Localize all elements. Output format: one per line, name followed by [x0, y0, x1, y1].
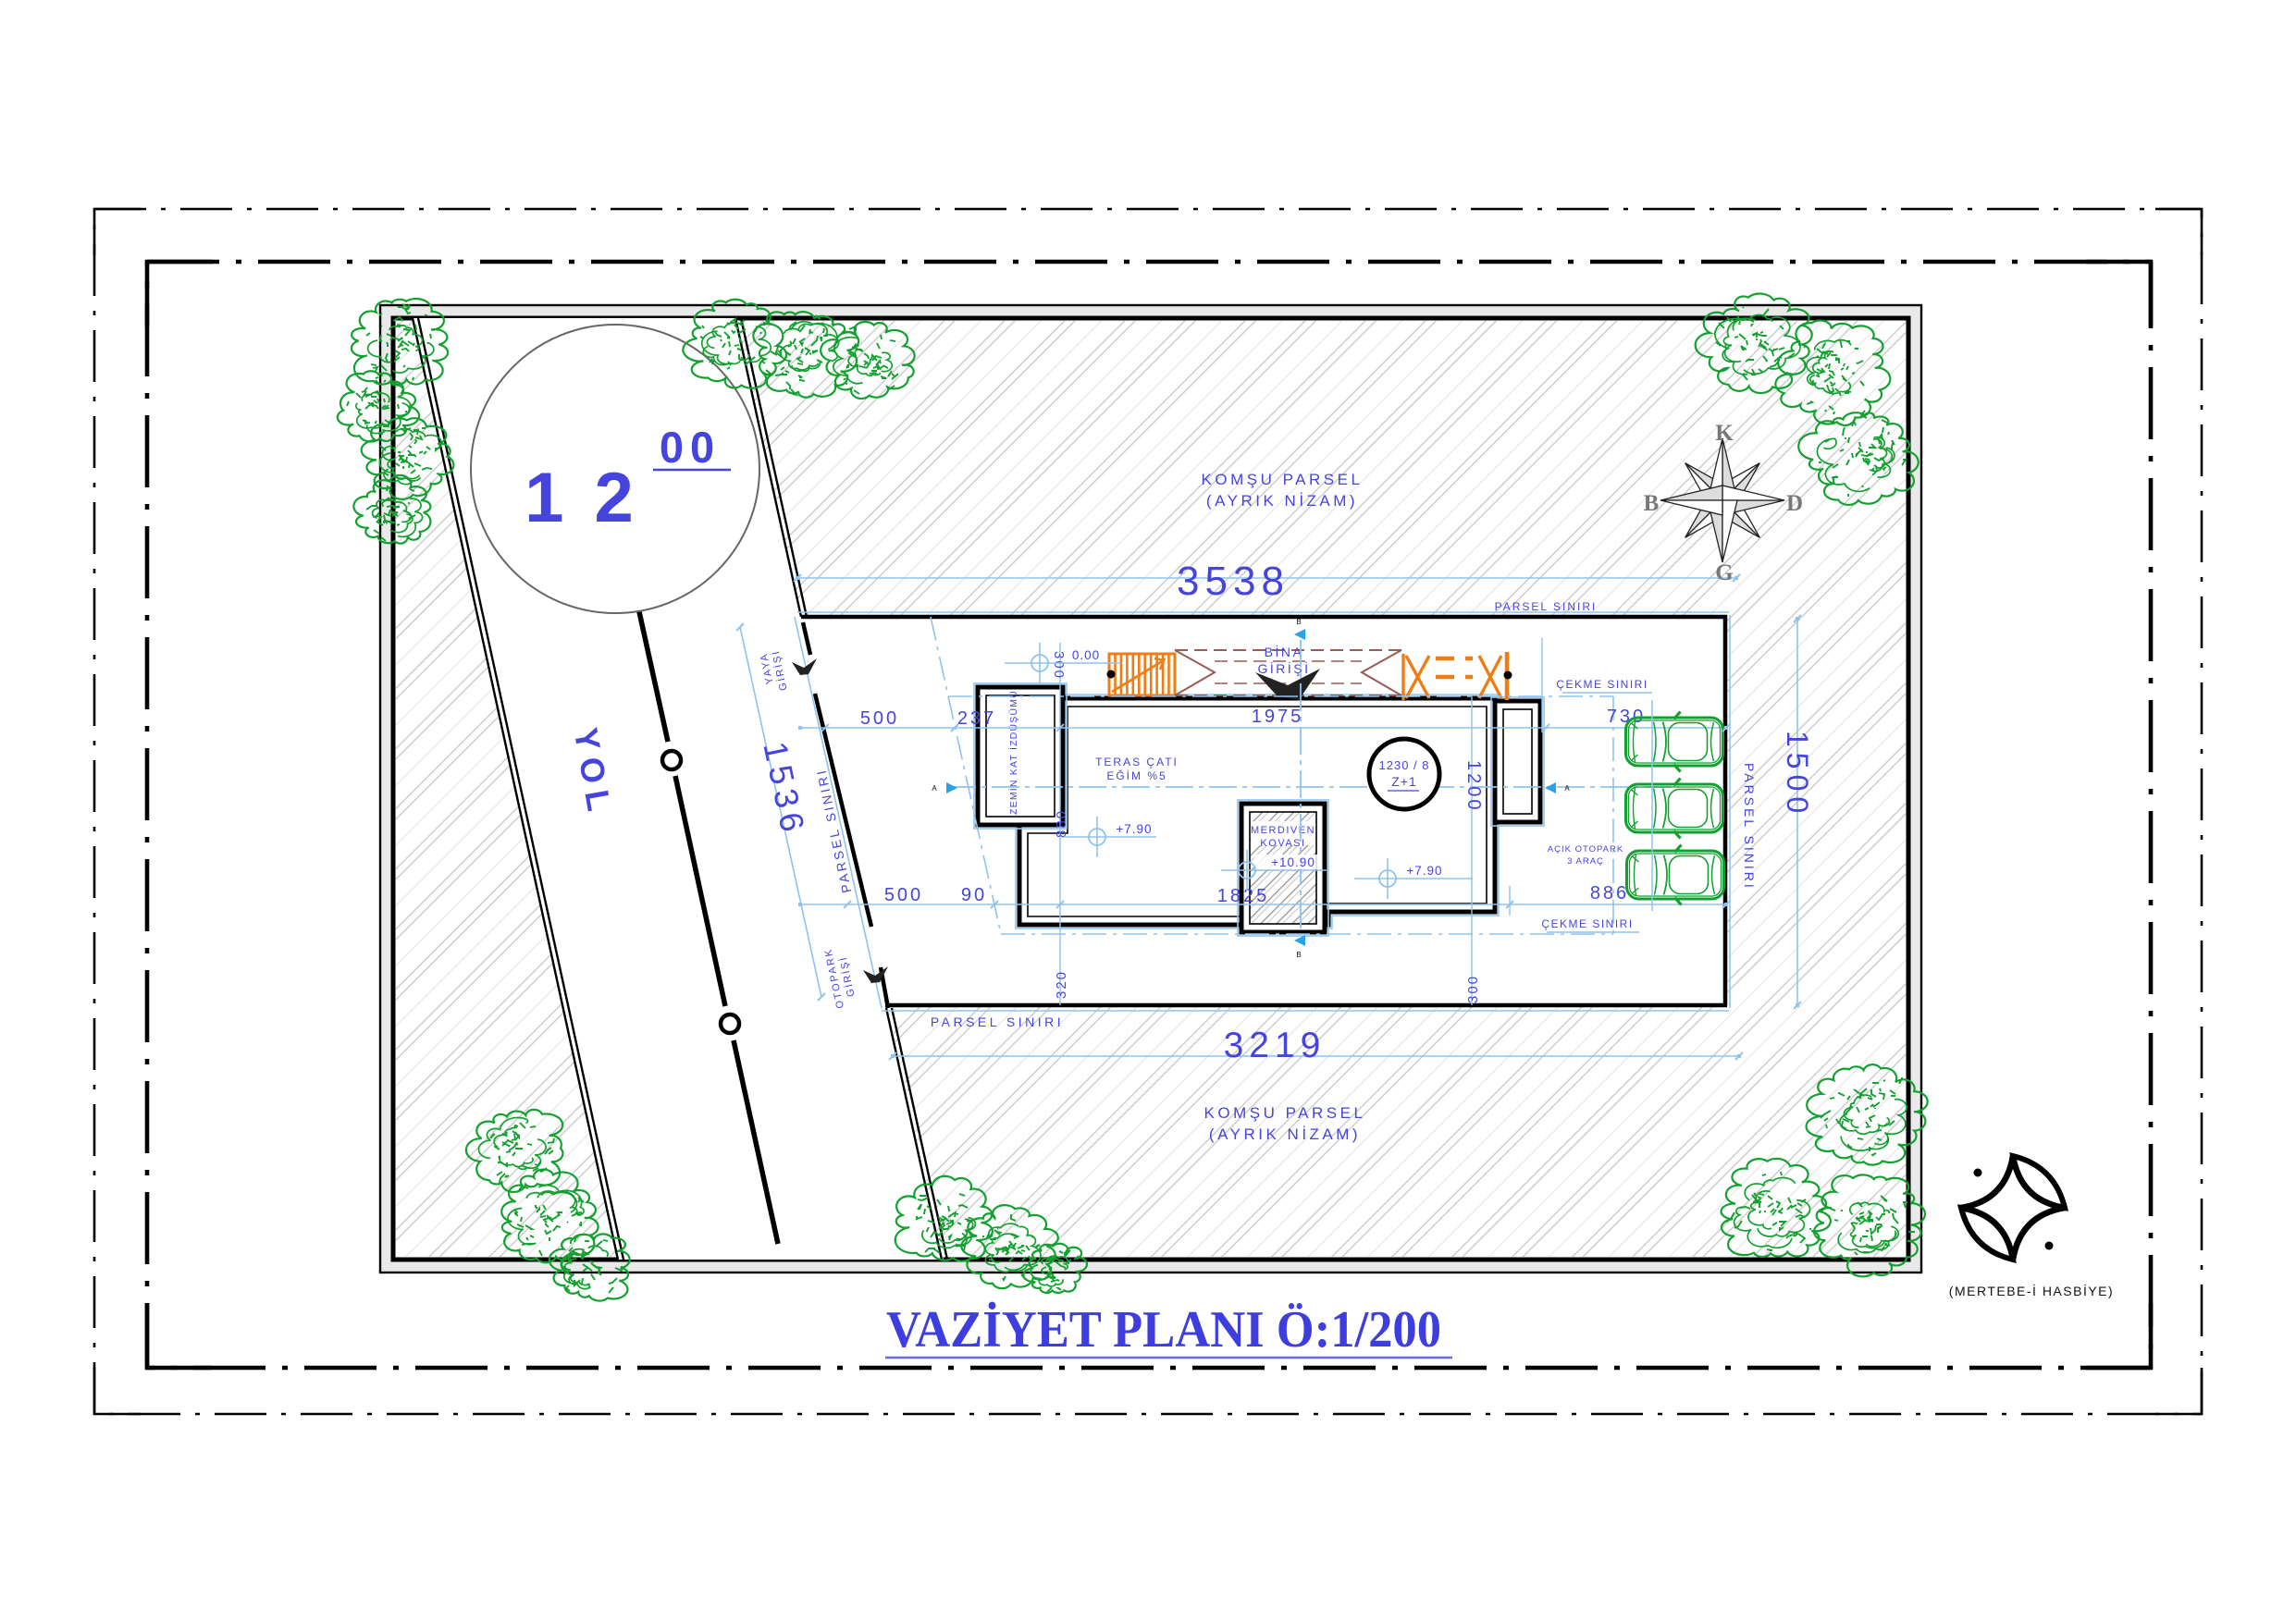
svg-text:MERDIVEN: MERDIVEN: [1251, 825, 1315, 836]
svg-text:A: A: [932, 784, 937, 793]
svg-text:B: B: [1644, 491, 1660, 516]
svg-text:VAZİYET PLANI Ö:1/200: VAZİYET PLANI Ö:1/200: [886, 1301, 1441, 1359]
svg-text:3538: 3538: [1177, 559, 1290, 604]
svg-text:3 ARAÇ: 3 ARAÇ: [1567, 856, 1604, 867]
svg-text:1500: 1500: [1781, 731, 1814, 818]
svg-text:PARSEL SINIRI: PARSEL SINIRI: [1742, 763, 1757, 891]
svg-text:+7.90: +7.90: [1406, 864, 1442, 878]
svg-text:300: 300: [1051, 651, 1067, 680]
svg-text:90: 90: [961, 885, 987, 905]
svg-text:+10.90: +10.90: [1271, 855, 1315, 869]
svg-text:B: B: [1296, 618, 1301, 626]
svg-text:(MERTEBE-İ HASBİYE): (MERTEBE-İ HASBİYE): [1949, 1283, 2114, 1298]
svg-text:ÇEKME SINIRI: ÇEKME SINIRI: [1541, 917, 1633, 930]
svg-text:BİNA: BİNA: [1265, 644, 1304, 659]
svg-text:Z+1: Z+1: [1391, 774, 1417, 789]
svg-text:KOMŞU PARSEL: KOMŞU PARSEL: [1204, 1104, 1366, 1122]
svg-text:3219: 3219: [1224, 1026, 1327, 1065]
svg-text:G: G: [1715, 560, 1733, 585]
svg-text:TERAS ÇATI: TERAS ÇATI: [1095, 756, 1179, 768]
svg-text:300: 300: [1465, 975, 1481, 1003]
svg-text:KOMŞU PARSEL: KOMŞU PARSEL: [1202, 471, 1364, 488]
svg-text:D: D: [1786, 491, 1803, 516]
svg-text:PARSEL SINIRI: PARSEL SINIRI: [931, 1014, 1064, 1029]
svg-text:K: K: [1715, 421, 1734, 446]
svg-text:880: 880: [1054, 809, 1069, 838]
svg-text:1975: 1975: [1252, 707, 1304, 727]
svg-text:500: 500: [860, 708, 899, 729]
svg-text:A: A: [1564, 784, 1570, 793]
svg-text:886: 886: [1590, 883, 1629, 904]
svg-text:B: B: [1296, 951, 1301, 959]
svg-text:+7.90: +7.90: [1116, 822, 1152, 836]
svg-text:1230 / 8: 1230 / 8: [1379, 758, 1430, 772]
svg-text:EĞİM %5: EĞİM %5: [1106, 768, 1167, 782]
svg-text:237: 237: [957, 708, 996, 729]
svg-text:320: 320: [1054, 970, 1069, 999]
svg-text:AÇIK OTOPARK: AÇIK OTOPARK: [1548, 844, 1623, 855]
svg-text:(AYRIK NİZAM): (AYRIK NİZAM): [1206, 492, 1358, 510]
svg-text:ZEMİN KAT İZDÜŞÜMÜ: ZEMİN KAT İZDÜŞÜMÜ: [1007, 690, 1019, 815]
svg-text:GİRİŞİ: GİRİŞİ: [1257, 660, 1310, 676]
svg-text:00: 00: [660, 423, 721, 472]
svg-text:1825: 1825: [1217, 886, 1270, 906]
svg-text:1 2: 1 2: [525, 459, 639, 537]
svg-text:(AYRIK NİZAM): (AYRIK NİZAM): [1209, 1125, 1361, 1143]
svg-text:1200: 1200: [1463, 760, 1484, 813]
svg-text:PARSEL SINIRI: PARSEL SINIRI: [1495, 600, 1598, 613]
svg-text:500: 500: [884, 885, 923, 905]
svg-text:0.00: 0.00: [1072, 648, 1100, 662]
svg-text:ÇEKME SINIRI: ÇEKME SINIRI: [1556, 678, 1648, 691]
svg-text:KOVASI: KOVASI: [1260, 838, 1305, 849]
